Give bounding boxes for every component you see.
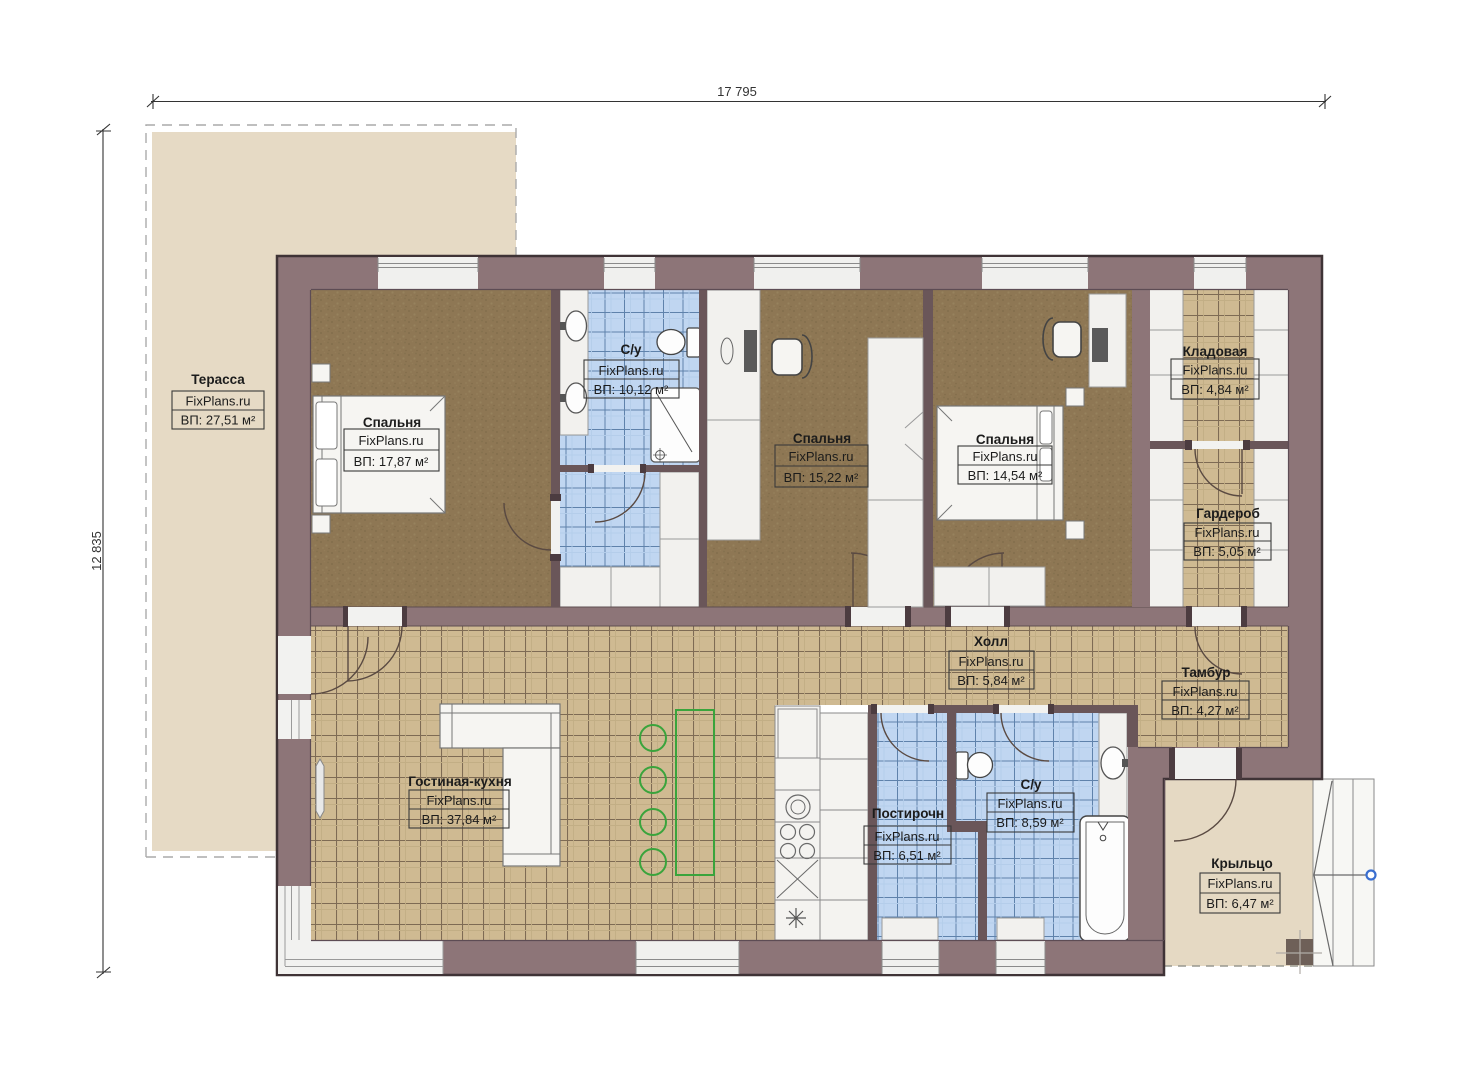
svg-text:Гардероб: Гардероб [1196, 506, 1260, 521]
svg-text:Кладовая: Кладовая [1183, 344, 1248, 359]
svg-text:Холл: Холл [974, 634, 1008, 649]
svg-text:Постирочн: Постирочн [872, 806, 944, 821]
svg-text:FixPlans.ru: FixPlans.ru [598, 363, 663, 378]
svg-text:FixPlans.ru: FixPlans.ru [972, 449, 1037, 464]
svg-text:ВП: 15,22 м²: ВП: 15,22 м² [784, 470, 859, 485]
svg-text:ВП: 27,51 м²: ВП: 27,51 м² [181, 413, 256, 428]
svg-text:Тамбур: Тамбур [1182, 665, 1231, 680]
svg-text:ВП: 10,12 м²: ВП: 10,12 м² [594, 382, 669, 397]
svg-text:ВП: 5,84 м²: ВП: 5,84 м² [957, 673, 1025, 688]
svg-text:ВП: 4,84 м²: ВП: 4,84 м² [1181, 382, 1249, 397]
svg-text:ВП: 6,47 м²: ВП: 6,47 м² [1206, 896, 1274, 911]
svg-text:FixPlans.ru: FixPlans.ru [874, 829, 939, 844]
svg-text:FixPlans.ru: FixPlans.ru [358, 433, 423, 448]
svg-text:С/у: С/у [620, 342, 642, 357]
svg-text:Терасса: Терасса [191, 372, 245, 387]
svg-text:Спальня: Спальня [976, 432, 1034, 447]
svg-text:ВП: 5,05 м²: ВП: 5,05 м² [1193, 544, 1261, 559]
svg-text:ВП: 6,51 м²: ВП: 6,51 м² [873, 848, 941, 863]
svg-text:ВП: 14,54 м²: ВП: 14,54 м² [968, 468, 1043, 483]
svg-text:Крыльцо: Крыльцо [1211, 856, 1272, 871]
svg-text:FixPlans.ru: FixPlans.ru [1172, 684, 1237, 699]
svg-text:12 835: 12 835 [89, 531, 104, 571]
svg-text:FixPlans.ru: FixPlans.ru [426, 793, 491, 808]
svg-text:Спальня: Спальня [363, 415, 421, 430]
svg-text:Спальня: Спальня [793, 431, 851, 446]
svg-text:FixPlans.ru: FixPlans.ru [997, 796, 1062, 811]
svg-text:FixPlans.ru: FixPlans.ru [788, 449, 853, 464]
svg-text:FixPlans.ru: FixPlans.ru [1194, 525, 1259, 540]
svg-text:FixPlans.ru: FixPlans.ru [185, 394, 250, 409]
svg-text:ВП: 17,87 м²: ВП: 17,87 м² [354, 454, 429, 469]
svg-text:17 795: 17 795 [717, 84, 757, 99]
svg-text:ВП: 37,84 м²: ВП: 37,84 м² [422, 812, 497, 827]
svg-text:FixPlans.ru: FixPlans.ru [958, 654, 1023, 669]
svg-text:ВП: 4,27 м²: ВП: 4,27 м² [1171, 703, 1239, 718]
svg-text:Гостиная-кухня: Гостиная-кухня [408, 774, 511, 789]
svg-text:FixPlans.ru: FixPlans.ru [1207, 876, 1272, 891]
svg-text:FixPlans.ru: FixPlans.ru [1182, 363, 1247, 378]
svg-text:С/у: С/у [1020, 777, 1042, 792]
svg-text:ВП: 8,59 м²: ВП: 8,59 м² [996, 815, 1064, 830]
